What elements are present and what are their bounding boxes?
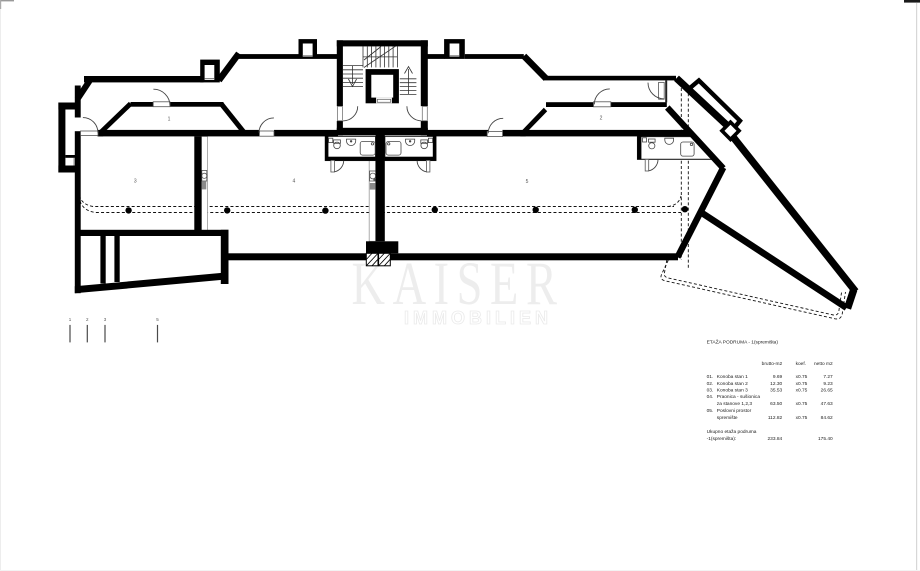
- svg-text:x0.75: x0.75: [796, 415, 808, 421]
- svg-text:02.: 02.: [707, 381, 714, 387]
- svg-text:05.: 05.: [707, 408, 714, 414]
- svg-text:x0.75: x0.75: [796, 401, 808, 407]
- svg-text:Konoba stan 2: Konoba stan 2: [717, 381, 748, 387]
- svg-text:47.63: 47.63: [821, 401, 833, 407]
- svg-text:9.69: 9.69: [773, 374, 783, 380]
- svg-text:3: 3: [134, 179, 137, 185]
- svg-text:01.: 01.: [707, 374, 714, 380]
- svg-text:za stanove 1,2,3: za stanove 1,2,3: [717, 401, 753, 407]
- svg-text:7.27: 7.27: [823, 374, 833, 380]
- svg-text:112.82: 112.82: [768, 415, 783, 421]
- svg-text:1: 1: [168, 117, 171, 123]
- svg-text:2: 2: [600, 116, 603, 122]
- svg-text:x0.75: x0.75: [796, 381, 808, 387]
- svg-text:Poslovni prostor: Poslovni prostor: [717, 408, 752, 414]
- svg-text:175.40: 175.40: [818, 436, 833, 442]
- svg-text:Konoba stan 1: Konoba stan 1: [717, 374, 748, 380]
- svg-text:233.84: 233.84: [768, 436, 783, 442]
- svg-text:12.30: 12.30: [770, 381, 782, 387]
- svg-text:5: 5: [526, 179, 529, 185]
- svg-text:x0.75: x0.75: [796, 387, 808, 393]
- svg-text:03.: 03.: [707, 387, 714, 393]
- svg-text:35.53: 35.53: [770, 387, 782, 393]
- svg-text:84.62: 84.62: [821, 415, 833, 421]
- svg-text:spremište: spremište: [717, 415, 738, 421]
- svg-text:x0.75: x0.75: [796, 374, 808, 380]
- svg-text:04.: 04.: [707, 394, 714, 400]
- svg-text:Konoba stan 3: Konoba stan 3: [717, 387, 748, 393]
- svg-text:netto m2: netto m2: [814, 361, 833, 367]
- svg-text:4: 4: [293, 179, 296, 185]
- svg-text:Praonica - sušionica: Praonica - sušionica: [717, 394, 761, 400]
- svg-text:IMMOBILIEN: IMMOBILIEN: [404, 308, 552, 328]
- svg-text:-1(spremišta):: -1(spremišta):: [707, 436, 737, 442]
- svg-text:63.50: 63.50: [770, 401, 782, 407]
- svg-text:Ukupno etaža podruma: Ukupno etaža podruma: [707, 429, 757, 435]
- svg-text:26.65: 26.65: [821, 387, 833, 393]
- svg-text:koef.: koef.: [796, 361, 806, 367]
- svg-text:9.23: 9.23: [823, 381, 833, 387]
- svg-text:brutto-m2: brutto-m2: [762, 361, 783, 367]
